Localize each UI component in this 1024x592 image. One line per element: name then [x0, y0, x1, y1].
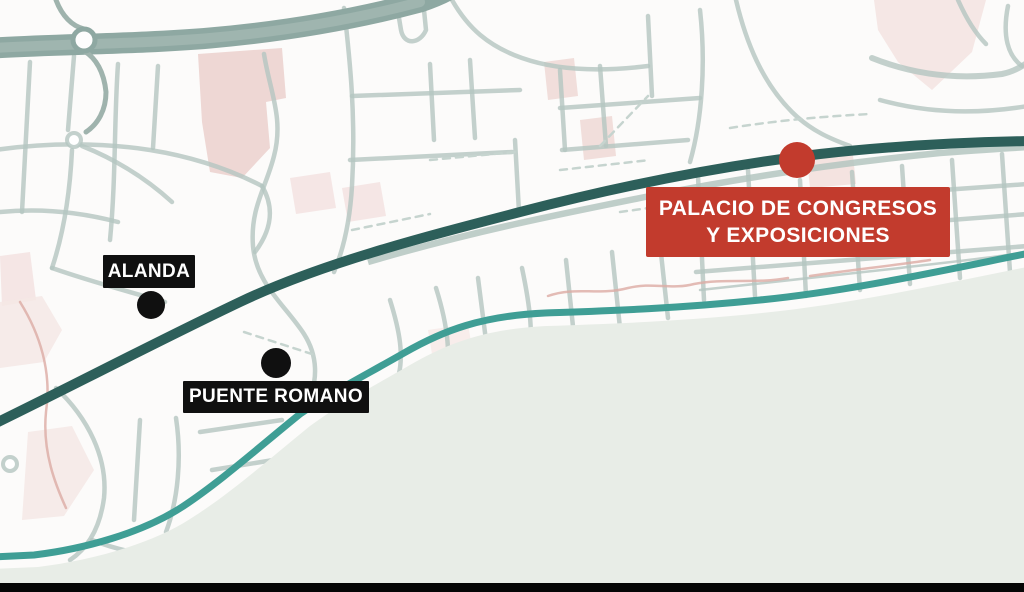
marker-dot-palacio	[779, 142, 815, 178]
roundabout-icon	[73, 29, 95, 51]
bottom-frame-bar	[0, 583, 1024, 592]
map-label-palacio-line1: PALACIO DE CONGRESOS	[659, 195, 937, 222]
marker-dot-alanda	[137, 291, 165, 319]
map-label-alanda-text: ALANDA	[108, 261, 191, 283]
map-label-puente-romano: PUENTE ROMANO	[183, 381, 369, 413]
map-label-palacio: PALACIO DE CONGRESOS Y EXPOSICIONES	[646, 187, 950, 257]
map-graphic: ALANDA PUENTE ROMANO PALACIO DE CONGRESO…	[0, 0, 1024, 592]
marker-dot-puente-romano	[261, 348, 291, 378]
map-label-puente-romano-text: PUENTE ROMANO	[189, 386, 363, 408]
map-label-alanda: ALANDA	[103, 255, 195, 288]
map-canvas	[0, 0, 1024, 592]
map-label-palacio-line2: Y EXPOSICIONES	[706, 222, 890, 249]
